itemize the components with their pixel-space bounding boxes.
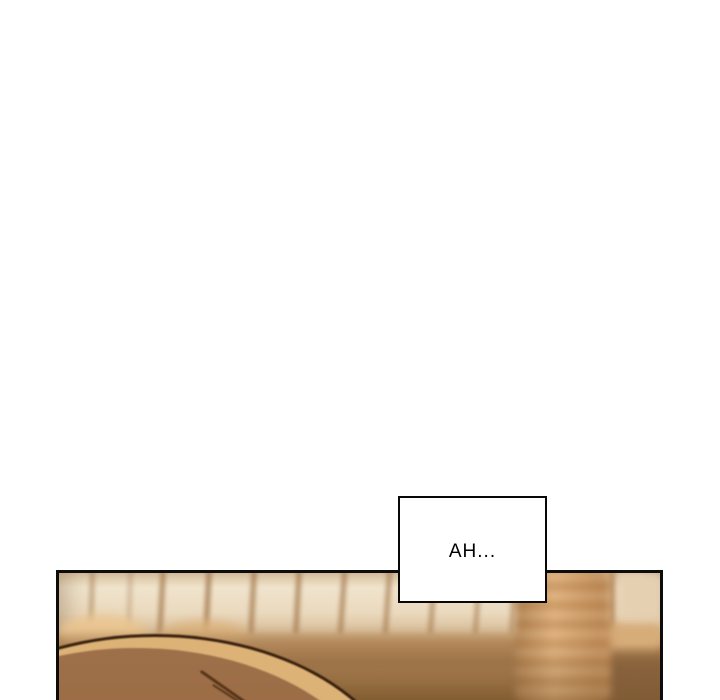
railing-baluster xyxy=(383,570,392,634)
page-canvas: AH... xyxy=(0,0,720,700)
speech-bubble: AH... xyxy=(398,496,547,603)
railing-baluster xyxy=(293,570,301,634)
railing-baluster xyxy=(157,570,165,634)
railing-baluster xyxy=(248,570,256,634)
railing-baluster xyxy=(338,570,347,634)
panel-scene xyxy=(59,573,660,700)
comic-panel xyxy=(56,570,663,700)
speech-bubble-text: AH... xyxy=(449,537,496,563)
